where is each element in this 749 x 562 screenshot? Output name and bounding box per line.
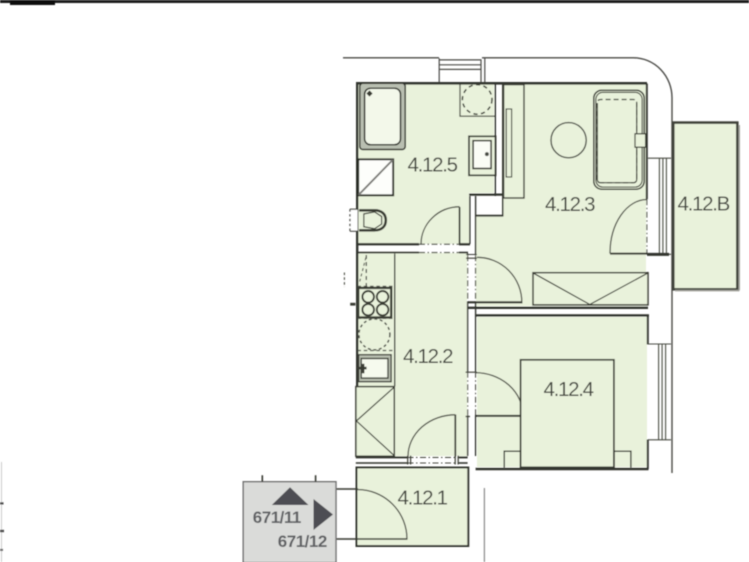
svg-text:4.12.1: 4.12.1 [398,486,448,509]
svg-text:4.12.3: 4.12.3 [545,193,595,216]
svg-text:4.12.5: 4.12.5 [408,154,458,177]
svg-text:671/12: 671/12 [278,532,327,551]
svg-text:4.12.2: 4.12.2 [403,345,453,368]
svg-text:671/11: 671/11 [253,508,301,527]
svg-text:4.12.B: 4.12.B [678,193,730,216]
svg-text:4.12.4: 4.12.4 [544,378,594,401]
